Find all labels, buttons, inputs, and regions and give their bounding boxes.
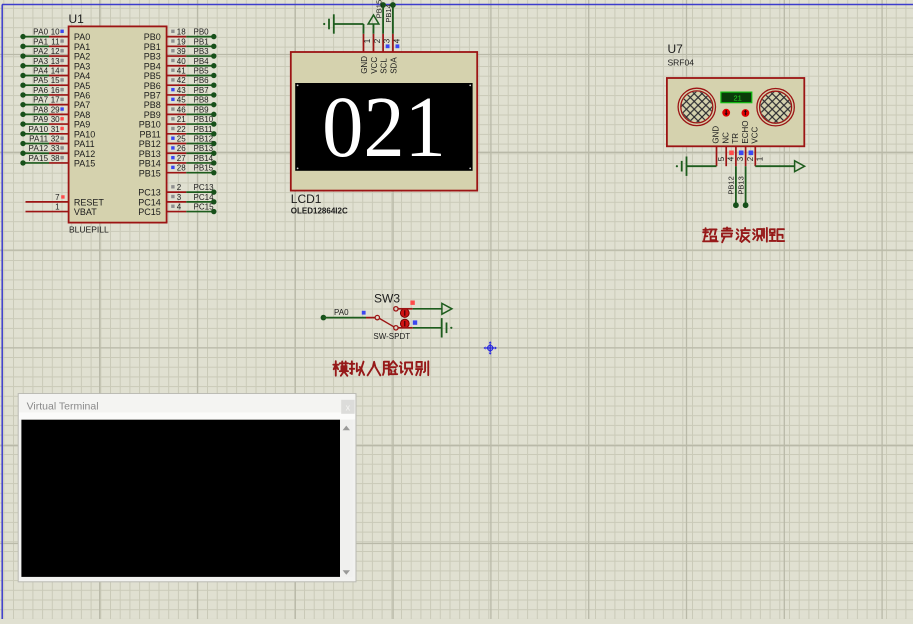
svg-text:PB9: PB9 bbox=[144, 110, 161, 120]
svg-text:PB7: PB7 bbox=[194, 86, 210, 95]
svg-text:PB15: PB15 bbox=[139, 168, 161, 178]
svg-text:41: 41 bbox=[177, 66, 186, 75]
svg-text:PB0: PB0 bbox=[194, 28, 210, 37]
svg-text:31: 31 bbox=[51, 125, 60, 134]
svg-text:PA1: PA1 bbox=[74, 42, 90, 52]
svg-text:SDA: SDA bbox=[389, 57, 398, 74]
svg-text:PB12: PB12 bbox=[139, 139, 161, 149]
svg-text:BLUEPILL: BLUEPILL bbox=[69, 224, 109, 234]
svg-text:U7: U7 bbox=[668, 42, 684, 56]
svg-text:46: 46 bbox=[177, 105, 186, 114]
svg-text:PB14: PB14 bbox=[139, 159, 161, 169]
svg-text:U1: U1 bbox=[69, 12, 85, 26]
svg-text:PB11: PB11 bbox=[139, 129, 160, 139]
svg-text:30: 30 bbox=[51, 115, 60, 124]
svg-text:PA10: PA10 bbox=[74, 129, 95, 139]
svg-text:18: 18 bbox=[177, 28, 186, 37]
svg-text:PB15: PB15 bbox=[374, 0, 383, 18]
svg-text:PA12: PA12 bbox=[74, 149, 95, 159]
svg-text:PA7: PA7 bbox=[33, 96, 48, 105]
svg-text:VCC: VCC bbox=[370, 57, 379, 74]
svg-text:3: 3 bbox=[736, 156, 745, 161]
svg-text:SRF04: SRF04 bbox=[668, 57, 695, 67]
svg-text:25: 25 bbox=[177, 135, 186, 144]
svg-text:PB3: PB3 bbox=[144, 52, 161, 62]
svg-text:PA5: PA5 bbox=[74, 81, 90, 91]
svg-text:7: 7 bbox=[55, 193, 60, 202]
svg-text:PB6: PB6 bbox=[144, 81, 161, 91]
svg-text:PA12: PA12 bbox=[29, 144, 49, 153]
svg-text:PA15: PA15 bbox=[74, 159, 95, 169]
svg-text:TR: TR bbox=[731, 133, 740, 144]
svg-text:1: 1 bbox=[55, 203, 60, 212]
svg-text:PB4: PB4 bbox=[194, 57, 210, 66]
svg-text:33: 33 bbox=[51, 144, 60, 153]
svg-text:PC13: PC13 bbox=[194, 183, 215, 192]
svg-text:PA11: PA11 bbox=[74, 139, 95, 149]
svg-text:1: 1 bbox=[363, 38, 372, 43]
svg-text:PA7: PA7 bbox=[74, 100, 90, 110]
svg-text:PA8: PA8 bbox=[74, 110, 90, 120]
svg-text:PA2: PA2 bbox=[33, 47, 48, 56]
svg-text:26: 26 bbox=[177, 144, 186, 153]
svg-text:PA2: PA2 bbox=[74, 52, 90, 62]
svg-text:PA0: PA0 bbox=[334, 308, 349, 317]
svg-text:42: 42 bbox=[177, 76, 186, 85]
svg-text:43: 43 bbox=[177, 86, 186, 95]
svg-text:PA0: PA0 bbox=[33, 28, 48, 37]
svg-text:VBAT: VBAT bbox=[74, 207, 97, 217]
svg-text:VCC: VCC bbox=[751, 126, 760, 143]
svg-text:PA3: PA3 bbox=[74, 61, 90, 71]
svg-text:PA6: PA6 bbox=[74, 91, 90, 101]
svg-text:PA9: PA9 bbox=[33, 115, 48, 124]
svg-text:OLED12864I2C: OLED12864I2C bbox=[291, 207, 348, 216]
svg-text:SW3: SW3 bbox=[374, 292, 400, 306]
svg-text:PA3: PA3 bbox=[33, 57, 48, 66]
svg-text:NC: NC bbox=[721, 132, 730, 144]
svg-text:PC14: PC14 bbox=[138, 197, 161, 207]
svg-text:PB13: PB13 bbox=[736, 176, 745, 194]
svg-text:3: 3 bbox=[177, 193, 182, 202]
svg-text:PA10: PA10 bbox=[29, 125, 49, 134]
svg-text:PC13: PC13 bbox=[138, 188, 161, 198]
svg-text:PA1: PA1 bbox=[33, 37, 48, 46]
svg-text:PB13: PB13 bbox=[139, 149, 161, 159]
svg-text:SW-SPDT: SW-SPDT bbox=[373, 332, 410, 341]
svg-text:PA6: PA6 bbox=[33, 86, 48, 95]
svg-text:1: 1 bbox=[756, 156, 765, 161]
svg-text:ECHO: ECHO bbox=[741, 120, 750, 143]
svg-text:21: 21 bbox=[177, 115, 186, 124]
svg-text:PB4: PB4 bbox=[144, 61, 161, 71]
svg-text:4: 4 bbox=[727, 156, 736, 161]
svg-text:PB13: PB13 bbox=[194, 144, 214, 153]
svg-text:4: 4 bbox=[177, 203, 182, 212]
svg-text:15: 15 bbox=[51, 76, 60, 85]
svg-text:x: x bbox=[346, 402, 351, 412]
svg-text:17: 17 bbox=[51, 96, 60, 105]
svg-text:29: 29 bbox=[51, 105, 60, 114]
svg-text:PB1: PB1 bbox=[144, 42, 161, 52]
svg-text:PB7: PB7 bbox=[144, 91, 161, 101]
svg-text:19: 19 bbox=[177, 37, 186, 46]
svg-text:PB8: PB8 bbox=[144, 100, 161, 110]
svg-text:PA15: PA15 bbox=[29, 154, 49, 163]
svg-text:PB12: PB12 bbox=[194, 135, 214, 144]
svg-text:38: 38 bbox=[51, 154, 60, 163]
svg-text:11: 11 bbox=[51, 37, 60, 46]
svg-text:PB1: PB1 bbox=[194, 37, 210, 46]
svg-text:PA4: PA4 bbox=[74, 71, 90, 81]
svg-text:10: 10 bbox=[51, 28, 60, 37]
svg-text:2: 2 bbox=[177, 183, 182, 192]
svg-text:PA0: PA0 bbox=[74, 32, 90, 42]
svg-text:40: 40 bbox=[177, 57, 186, 66]
svg-text:PA8: PA8 bbox=[33, 105, 48, 114]
svg-text:PB12: PB12 bbox=[727, 176, 736, 194]
svg-text:4: 4 bbox=[393, 38, 402, 43]
svg-text:PA9: PA9 bbox=[74, 120, 90, 130]
svg-text:PB5: PB5 bbox=[194, 66, 210, 75]
svg-text:45: 45 bbox=[177, 96, 186, 105]
svg-text:PB8: PB8 bbox=[194, 96, 210, 105]
svg-text:28: 28 bbox=[177, 164, 186, 173]
svg-text:12: 12 bbox=[51, 47, 60, 56]
svg-text:3: 3 bbox=[383, 38, 392, 43]
svg-text:PB15: PB15 bbox=[194, 164, 214, 173]
svg-text:SCL: SCL bbox=[380, 58, 389, 74]
svg-text:2: 2 bbox=[746, 156, 755, 161]
svg-text:GND: GND bbox=[712, 126, 721, 144]
svg-text:PB9: PB9 bbox=[194, 105, 210, 114]
svg-text:2: 2 bbox=[373, 38, 382, 43]
svg-text:PB3: PB3 bbox=[194, 47, 210, 56]
svg-text:PA5: PA5 bbox=[33, 76, 48, 85]
svg-text:PA4: PA4 bbox=[33, 66, 48, 75]
svg-text:16: 16 bbox=[51, 86, 60, 95]
svg-text:13: 13 bbox=[51, 57, 60, 66]
svg-text:PA11: PA11 bbox=[29, 135, 49, 144]
svg-text:21: 21 bbox=[733, 94, 741, 103]
svg-text:Virtual Terminal: Virtual Terminal bbox=[27, 400, 99, 412]
svg-text:PC15: PC15 bbox=[194, 203, 215, 212]
svg-text:22: 22 bbox=[177, 125, 186, 134]
svg-text:RESET: RESET bbox=[74, 197, 105, 207]
svg-text:LCD1: LCD1 bbox=[291, 192, 322, 206]
svg-text:021: 021 bbox=[322, 80, 446, 175]
svg-text:PC14: PC14 bbox=[194, 193, 215, 202]
svg-text:PB0: PB0 bbox=[144, 32, 161, 42]
svg-text:PB14: PB14 bbox=[194, 154, 214, 163]
svg-text:PB10: PB10 bbox=[194, 115, 214, 124]
svg-text:PB11: PB11 bbox=[194, 125, 214, 134]
svg-text:PB5: PB5 bbox=[144, 71, 161, 81]
svg-text:PB10: PB10 bbox=[139, 120, 161, 130]
svg-text:32: 32 bbox=[51, 135, 60, 144]
svg-text:PC15: PC15 bbox=[138, 207, 161, 217]
svg-text:GND: GND bbox=[360, 56, 369, 74]
svg-text:PB14: PB14 bbox=[384, 4, 393, 22]
svg-text:39: 39 bbox=[177, 47, 186, 56]
svg-text:PB6: PB6 bbox=[194, 76, 210, 85]
svg-text:5: 5 bbox=[717, 156, 726, 161]
svg-text:27: 27 bbox=[177, 154, 186, 163]
svg-text:14: 14 bbox=[51, 66, 60, 75]
